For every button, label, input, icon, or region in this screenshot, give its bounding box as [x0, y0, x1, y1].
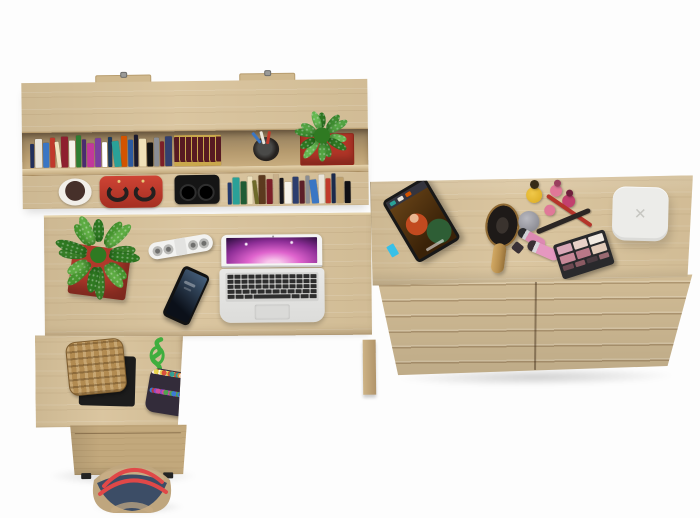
dresser-left-leg	[363, 340, 377, 395]
nail-polish-yellow	[526, 187, 542, 203]
nail-polish-cap	[530, 180, 539, 189]
furniture-render-scene: ✕	[0, 0, 700, 518]
tablet-cover-tab	[386, 243, 399, 257]
nail-polish-pink-small	[544, 205, 555, 216]
tablet-thumbnail	[397, 195, 404, 201]
palette-swatch	[598, 252, 610, 260]
hairbrush-handle	[490, 242, 507, 273]
palette-swatch	[574, 260, 586, 268]
dresser-top-surface: ✕	[370, 175, 694, 285]
nail-polish-cap	[566, 190, 573, 197]
tablet-group	[380, 182, 459, 261]
tablet-thumbnail	[389, 200, 396, 206]
palette-swatch	[562, 263, 574, 271]
wireless-charger: ✕	[612, 186, 669, 241]
dresser-group: ✕	[0, 0, 700, 518]
palette-swatch	[586, 256, 598, 264]
nail-polish-cap	[554, 180, 561, 187]
tablet-thumbnail	[405, 191, 412, 197]
x-mark-icon: ✕	[634, 205, 647, 223]
eyeshadow-palette	[553, 229, 615, 280]
